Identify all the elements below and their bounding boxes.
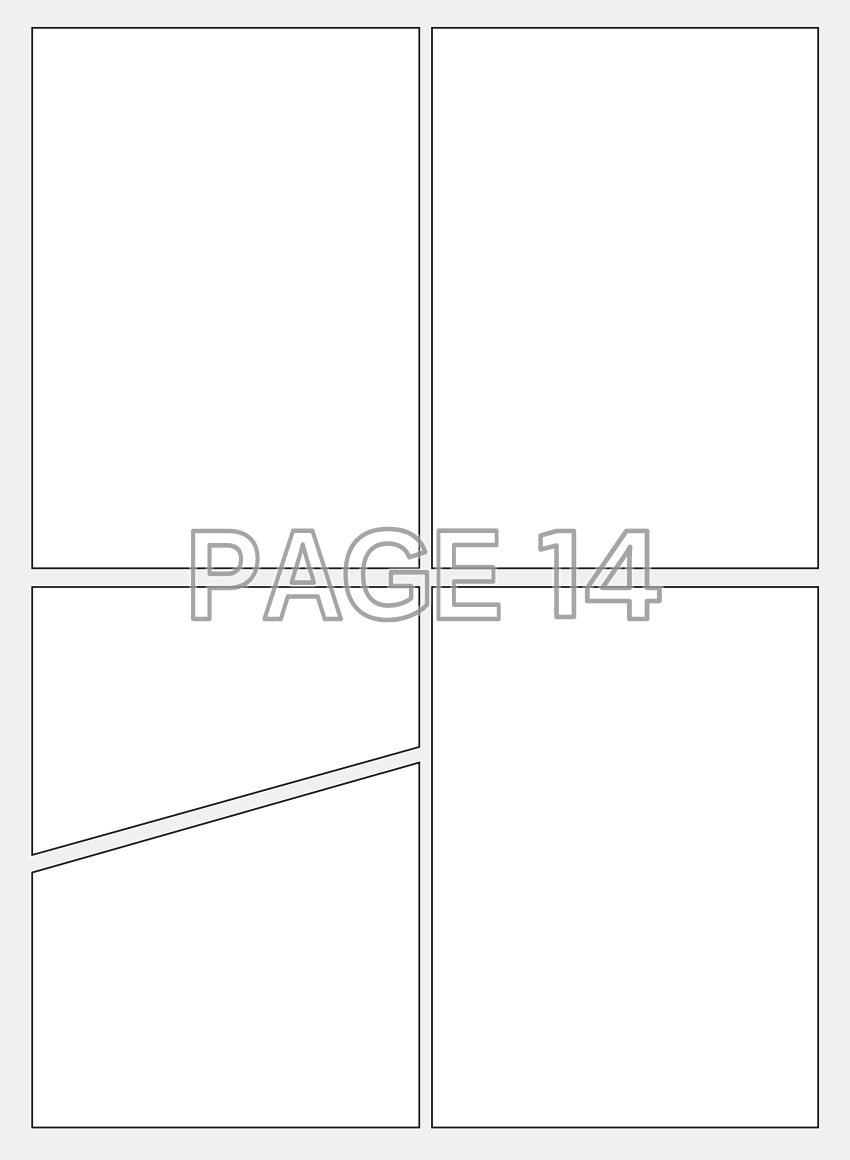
- svg-text:4: 4: [585, 503, 660, 646]
- svg-text:A: A: [262, 503, 344, 647]
- svg-text:E: E: [431, 504, 503, 647]
- svg-text:G: G: [341, 504, 435, 647]
- svg-text:P: P: [186, 503, 262, 647]
